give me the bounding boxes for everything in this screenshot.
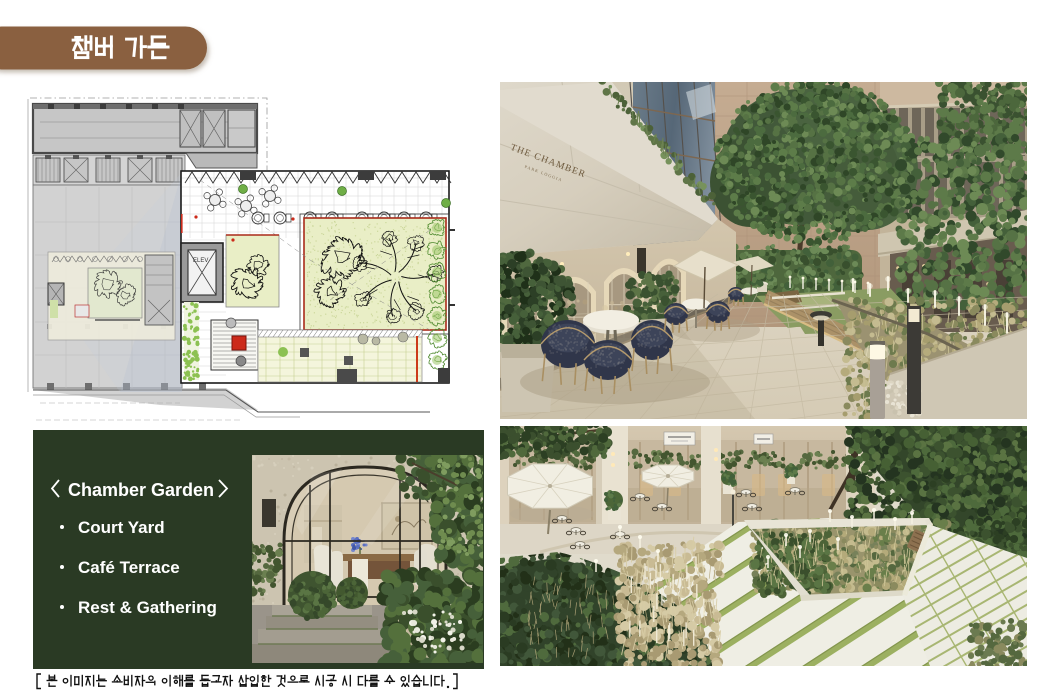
svg-text:Court Yard: Court Yard: [78, 518, 165, 537]
svg-text:Chamber Garden: Chamber Garden: [68, 480, 214, 500]
svg-text:Café Terrace: Café Terrace: [78, 558, 180, 577]
svg-text:ELEV: ELEV: [193, 258, 208, 264]
svg-text:Rest & Gathering: Rest & Gathering: [78, 598, 217, 617]
